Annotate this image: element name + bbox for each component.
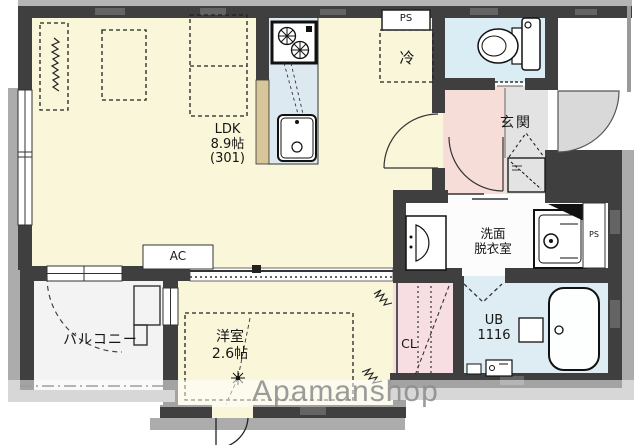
closet-label: CL [394, 336, 424, 351]
closet-floor [393, 276, 462, 382]
pipe-space-side-label: PS [583, 230, 605, 239]
porch-edge [627, 6, 631, 92]
washroom-label-line1: 洗面 [455, 226, 531, 241]
balcony-label: バルコニー [38, 329, 163, 349]
entrance-label: 玄関 [478, 112, 554, 132]
ac-label: AC [143, 249, 213, 263]
ldk-name: LDK [175, 123, 280, 138]
window-ldk-balcony [47, 266, 122, 281]
ldk-unit-number: (301) [175, 152, 280, 167]
western-room-name: 洋室 [182, 329, 278, 346]
ldk-label: LDK 8.9帖 (301) [175, 123, 280, 167]
pipe-space-top-label: PS [382, 13, 430, 24]
window-western-room-balcony [163, 288, 178, 325]
unit-bath-size: 1116 [460, 328, 528, 343]
bathtub [549, 288, 599, 370]
ldk-size: 8.9帖 [175, 138, 280, 153]
refrigerator-label: 冷 [381, 47, 433, 68]
vanity-basin [406, 216, 446, 270]
unit-bath-label: UB 1116 [460, 313, 528, 343]
washroom-label: 洗面 脱衣室 [455, 226, 531, 256]
hall-floor [443, 86, 508, 203]
kitchen-sink [278, 115, 316, 161]
western-room-size: 2.6帖 [182, 346, 278, 363]
toilet-door [495, 82, 525, 86]
stove [272, 22, 316, 63]
unit-bath-name: UB [460, 313, 528, 328]
floorplan: Apamanshop LDK 8.9帖 (301) 冷 玄関 洗面 脱衣室 洋室… [0, 0, 640, 445]
western-room-label: 洋室 2.6帖 [182, 329, 278, 363]
window-ldk-left [18, 90, 32, 225]
washing-machine-pan [534, 210, 586, 268]
watermark-text: Apamanshop [252, 377, 439, 407]
washroom-label-line2: 脱衣室 [455, 241, 531, 256]
